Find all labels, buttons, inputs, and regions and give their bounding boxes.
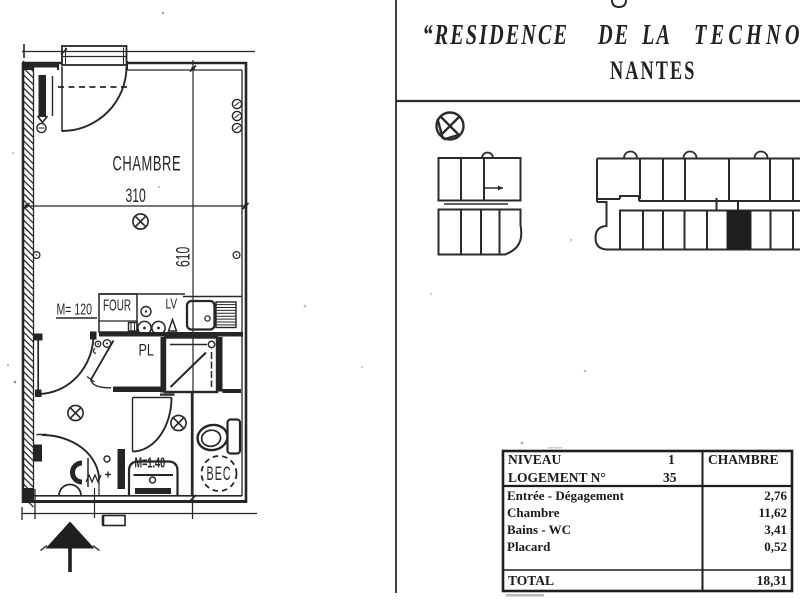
svg-text:Entrée - Dégagement: Entrée - Dégagement [507, 488, 625, 503]
svg-text:CHAMBRE: CHAMBRE [113, 151, 182, 175]
svg-text:11,62: 11,62 [758, 505, 787, 520]
svg-text:LOGEMENT N°: LOGEMENT N° [508, 470, 606, 485]
svg-text:35: 35 [663, 470, 677, 485]
svg-text:PL: PL [139, 342, 154, 360]
svg-text:0,52: 0,52 [764, 539, 787, 554]
svg-text:TOTAL: TOTAL [508, 573, 554, 588]
svg-text:Bains - WC: Bains - WC [507, 522, 571, 537]
svg-text:1: 1 [668, 452, 675, 467]
svg-text:Placard: Placard [507, 539, 551, 554]
svg-text:NIVEAU: NIVEAU [508, 452, 562, 467]
svg-text:DE: DE [597, 20, 630, 51]
svg-text:“RESIDENCE: “RESIDENCE [423, 20, 570, 51]
svg-text:610: 610 [174, 247, 194, 267]
svg-text:2,76: 2,76 [764, 488, 787, 503]
svg-text:LV: LV [166, 296, 178, 312]
svg-text:M= 120: M= 120 [57, 300, 92, 318]
svg-text:18,31: 18,31 [757, 573, 788, 588]
svg-text:TECHNO: TECHNO [694, 20, 800, 51]
svg-text:Chambre: Chambre [507, 505, 560, 520]
svg-text:3,41: 3,41 [764, 522, 787, 537]
svg-text:BEC: BEC [207, 464, 232, 485]
svg-text:CHAMBRE: CHAMBRE [708, 452, 779, 467]
svg-text:LA: LA [641, 20, 672, 51]
svg-text:M=1.40: M=1.40 [135, 454, 166, 471]
svg-text:310: 310 [126, 187, 146, 207]
svg-text:NANTES: NANTES [610, 56, 696, 85]
svg-text:FOUR: FOUR [103, 296, 131, 314]
